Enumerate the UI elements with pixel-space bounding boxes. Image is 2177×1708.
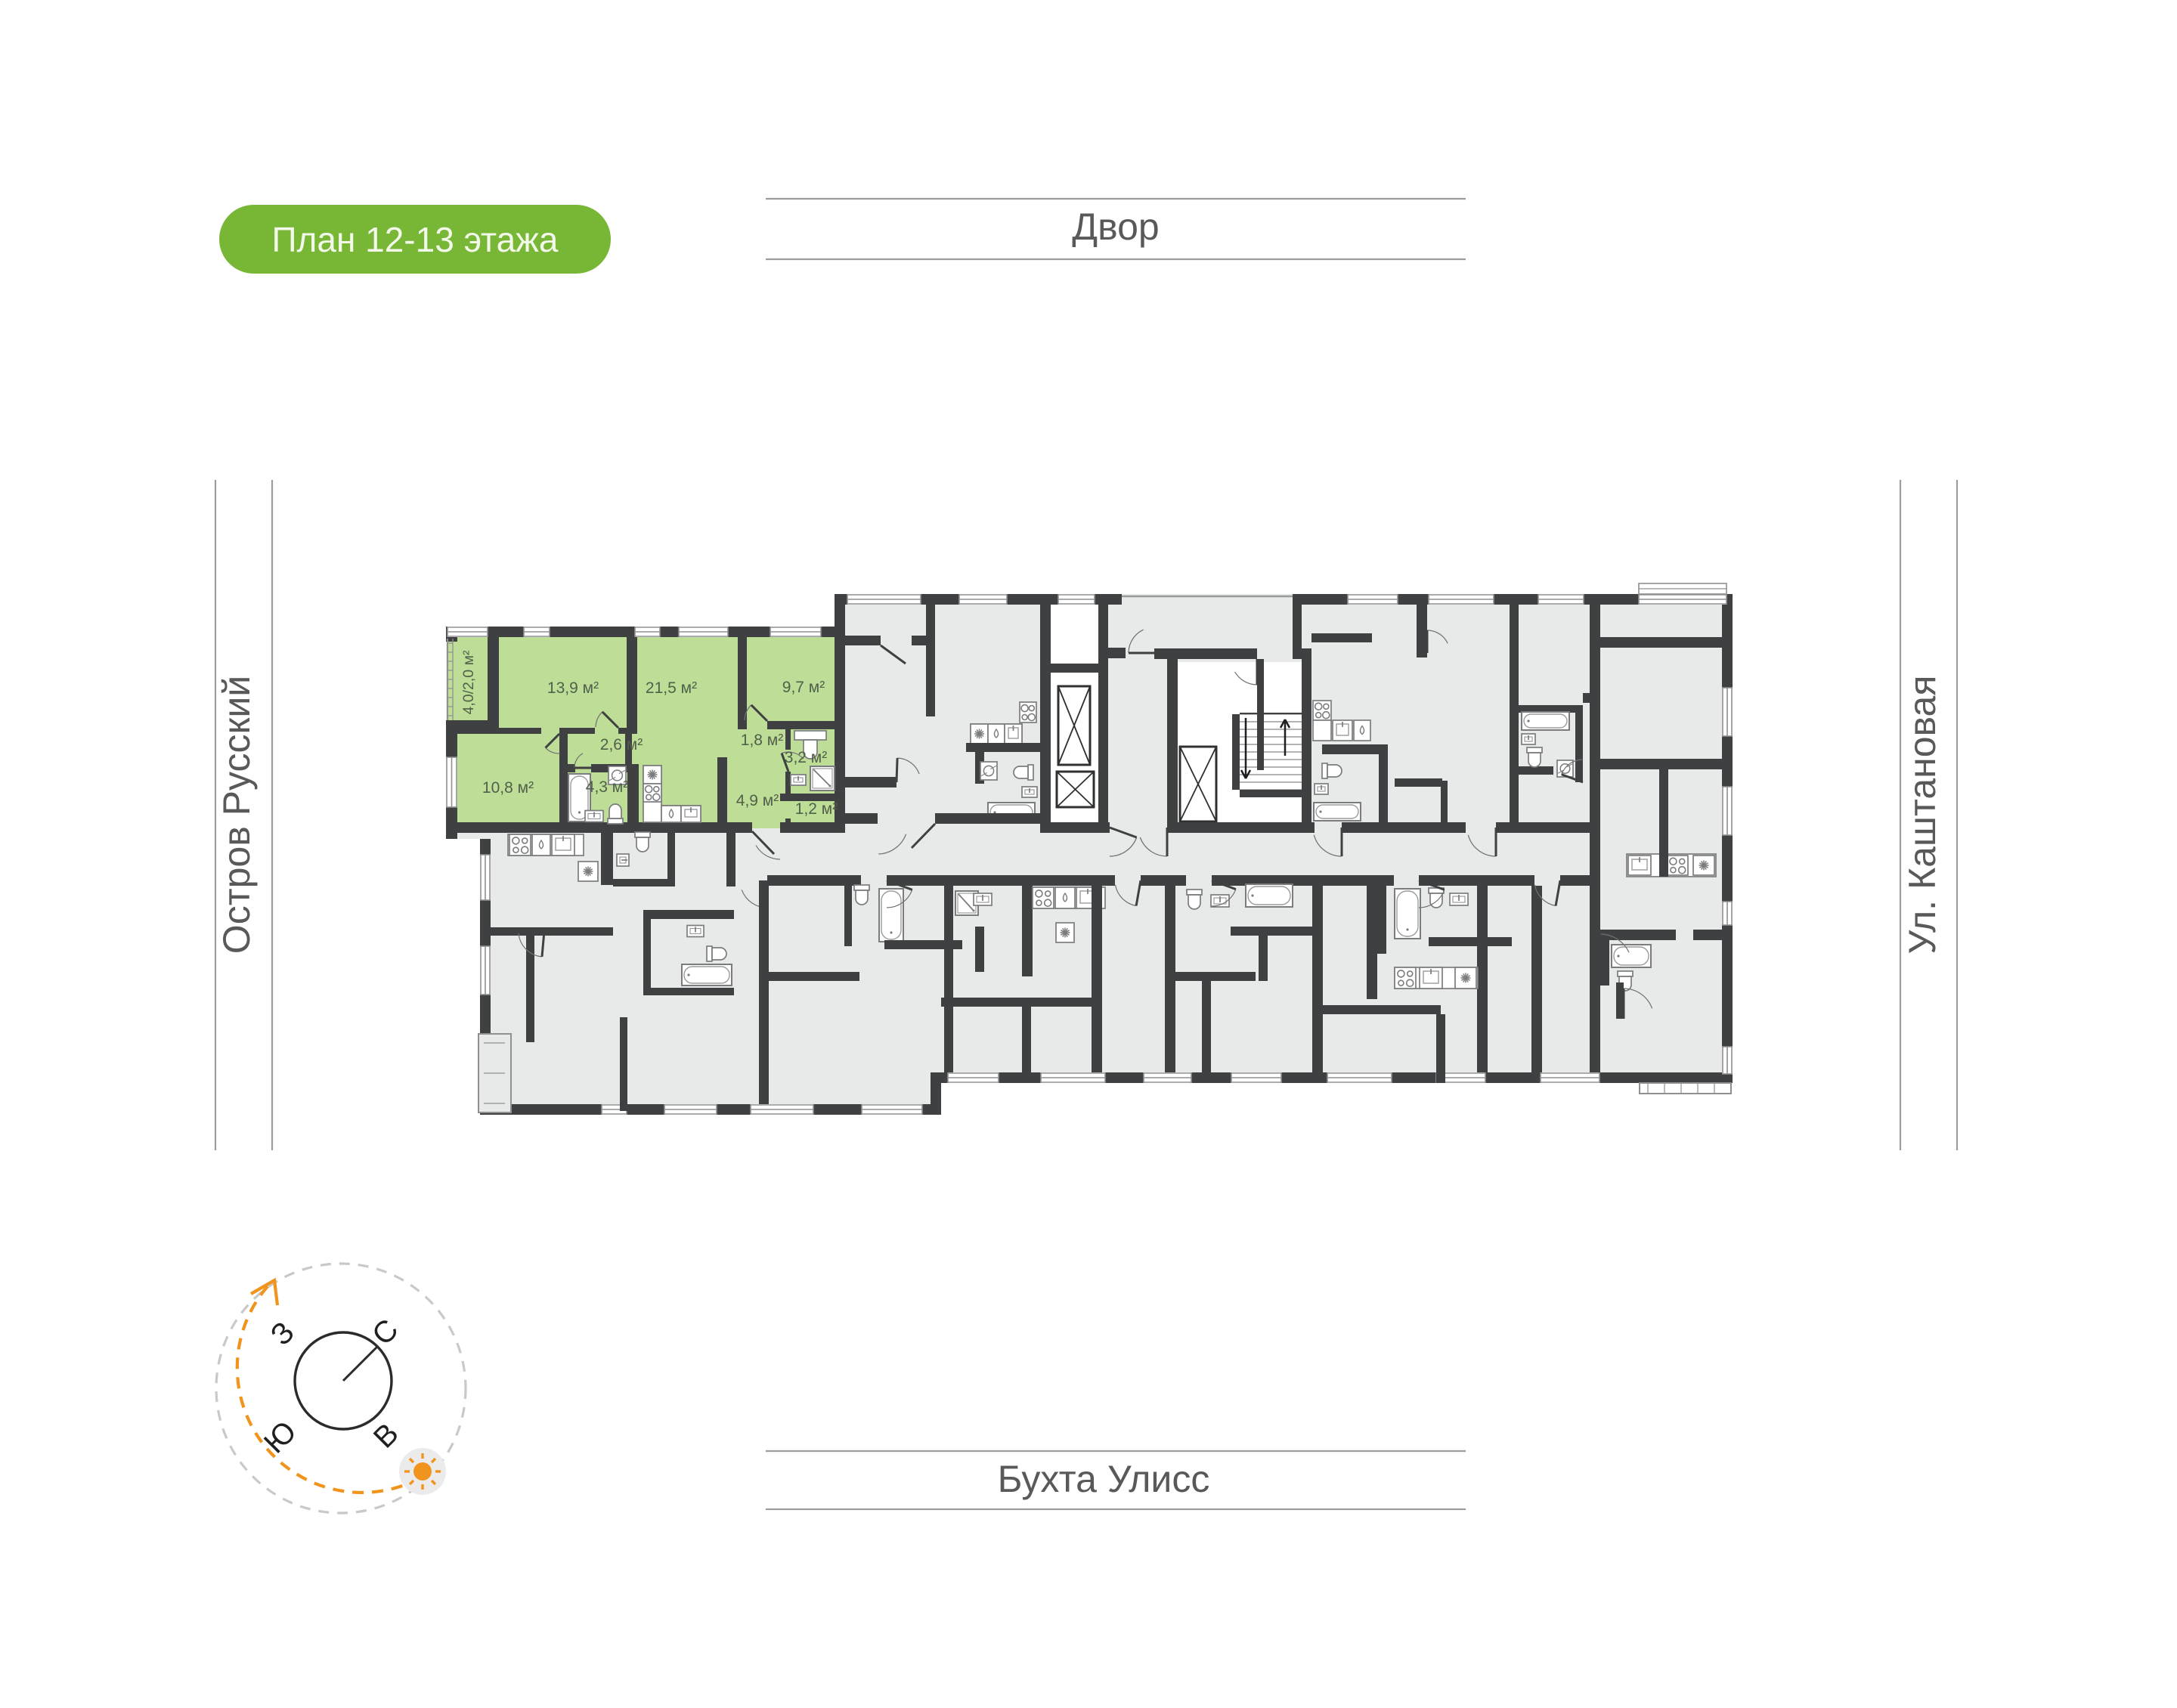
svg-text:План 12-13 этажа: План 12-13 этажа — [271, 220, 558, 259]
svg-text:4,3 м²: 4,3 м² — [586, 778, 628, 796]
svg-text:1,8 м²: 1,8 м² — [741, 732, 783, 749]
svg-text:4,9 м²: 4,9 м² — [736, 792, 779, 809]
svg-text:Ул. Каштановая: Ул. Каштановая — [1901, 676, 1943, 955]
svg-text:3,2 м²: 3,2 м² — [785, 749, 827, 766]
svg-text:1,2 м²: 1,2 м² — [795, 800, 838, 818]
svg-text:13,9 м²: 13,9 м² — [547, 679, 599, 697]
svg-text:2,6 м²: 2,6 м² — [600, 736, 643, 753]
svg-text:Остров Русский: Остров Русский — [215, 676, 258, 954]
svg-text:10,8 м²: 10,8 м² — [482, 779, 534, 797]
svg-text:4,0/2,0 м²: 4,0/2,0 м² — [460, 650, 477, 714]
svg-text:21,5 м²: 21,5 м² — [646, 679, 697, 697]
svg-text:Двор: Двор — [1072, 206, 1159, 248]
svg-text:Бухта Улисс: Бухта Улисс — [998, 1458, 1210, 1500]
svg-text:9,7 м²: 9,7 м² — [782, 679, 825, 696]
